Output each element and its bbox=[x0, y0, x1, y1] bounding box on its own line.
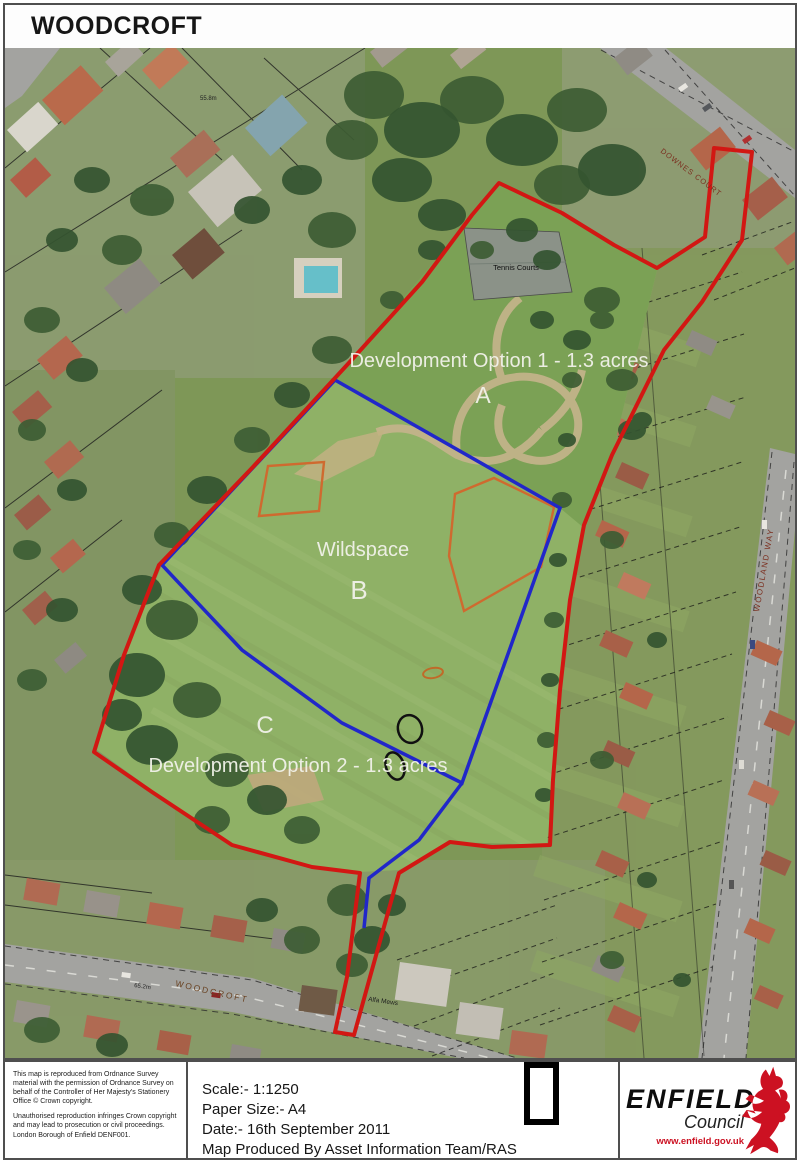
label-wildspace: Wildspace bbox=[317, 539, 409, 561]
footer-bar: This map is reproduced from Ordnance Sur… bbox=[3, 1060, 797, 1160]
council-logo-box: ENFIELD Council www.enfield.gov.uk bbox=[618, 1060, 797, 1160]
label-area-a: A bbox=[475, 382, 491, 408]
copyright-paragraph-2: Unauthorised reproduction infringes Crow… bbox=[13, 1112, 178, 1139]
label-area-c: C bbox=[256, 712, 273, 739]
date-text: Date:- 16th September 2011 bbox=[202, 1120, 517, 1140]
produced-by-text: Map Produced By Asset Information Team/R… bbox=[202, 1140, 517, 1160]
enfield-beast-icon bbox=[735, 1064, 793, 1156]
page-title: WOODCROFT bbox=[5, 5, 795, 48]
council-logo-text: ENFIELD Council www.enfield.gov.uk bbox=[626, 1086, 744, 1147]
map-area: Development Option 1 - 1.3 acres A Wilds… bbox=[3, 48, 797, 1060]
label-development-option-1: Development Option 1 - 1.3 acres bbox=[349, 350, 648, 372]
label-development-option-2: Development Option 2 - 1.3 acres bbox=[148, 755, 447, 777]
north-arrow-placeholder bbox=[524, 1062, 559, 1125]
map-details: Scale:- 1:1250 Paper Size:- A4 Date:- 16… bbox=[202, 1080, 517, 1160]
council-name: ENFIELD bbox=[626, 1086, 744, 1113]
copyright-box: This map is reproduced from Ordnance Sur… bbox=[3, 1060, 188, 1160]
title-bar: WOODCROFT bbox=[3, 3, 797, 50]
map-sheet: WOODCROFT bbox=[0, 0, 800, 1172]
map-details-box: Scale:- 1:1250 Paper Size:- A4 Date:- 16… bbox=[186, 1060, 620, 1160]
swimming-pool bbox=[304, 266, 338, 293]
council-website: www.enfield.gov.uk bbox=[626, 1136, 744, 1147]
council-subtitle: Council bbox=[626, 1113, 744, 1132]
copyright-paragraph-1: This map is reproduced from Ordnance Sur… bbox=[13, 1070, 178, 1106]
paper-size-text: Paper Size:- A4 bbox=[202, 1100, 517, 1120]
label-tennis-courts: Tennis Courts bbox=[493, 263, 539, 272]
scale-text: Scale:- 1:1250 bbox=[202, 1080, 517, 1100]
aerial-photo: Development Option 1 - 1.3 acres A Wilds… bbox=[5, 48, 795, 1058]
label-area-b: B bbox=[350, 575, 367, 605]
label-spot-height-top: 55.8m bbox=[200, 96, 217, 102]
